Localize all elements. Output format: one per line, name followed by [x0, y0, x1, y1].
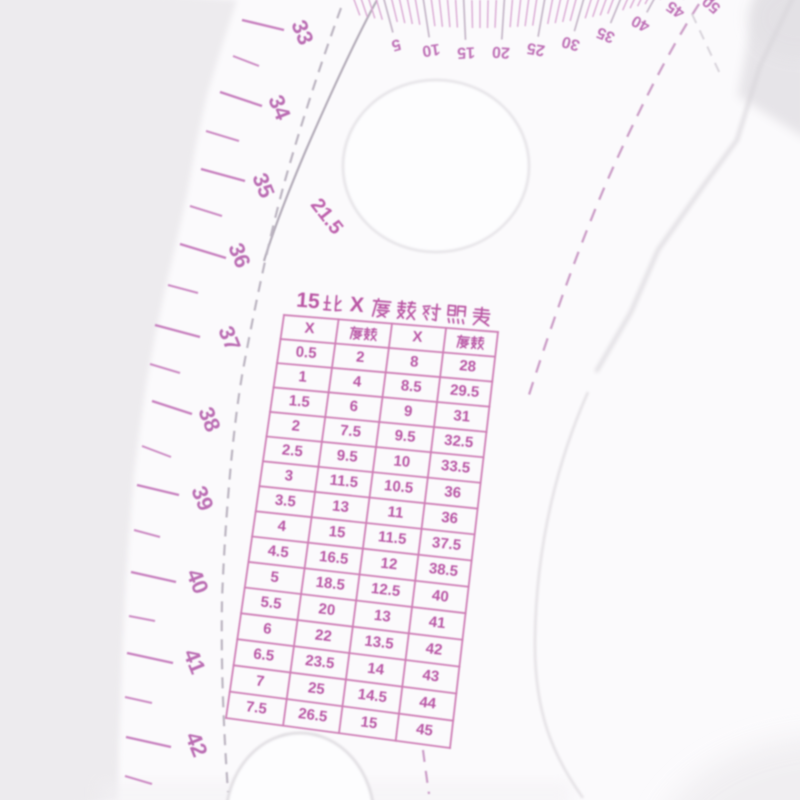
svg-text:5: 5	[389, 35, 402, 54]
svg-text:14: 14	[366, 660, 385, 679]
svg-text:25: 25	[526, 39, 547, 59]
svg-text:15: 15	[328, 523, 346, 542]
svg-text:15: 15	[360, 713, 379, 732]
svg-text:36: 36	[443, 483, 461, 502]
svg-text:21.5: 21.5	[306, 194, 347, 238]
svg-text:8: 8	[409, 353, 419, 371]
svg-text:42: 42	[425, 640, 444, 659]
svg-text:1.5: 1.5	[288, 392, 310, 411]
svg-text:33.5: 33.5	[440, 457, 471, 477]
svg-text:10: 10	[421, 40, 441, 60]
svg-text:4.5: 4.5	[267, 542, 290, 561]
svg-text:12.5: 12.5	[370, 580, 401, 600]
svg-text:15: 15	[457, 43, 476, 61]
svg-text:50: 50	[699, 0, 724, 16]
svg-text:40: 40	[431, 587, 450, 606]
svg-text:36: 36	[440, 509, 458, 528]
svg-text:45: 45	[664, 0, 688, 21]
svg-text:10.5: 10.5	[383, 477, 414, 497]
svg-text:0.5: 0.5	[295, 343, 317, 362]
svg-text:43: 43	[422, 667, 441, 686]
svg-text:13.5: 13.5	[364, 632, 395, 652]
svg-text:7.5: 7.5	[339, 422, 361, 441]
svg-text:20: 20	[491, 43, 510, 61]
svg-text:44: 44	[418, 694, 437, 713]
svg-text:12: 12	[380, 555, 398, 574]
svg-text:7: 7	[255, 673, 265, 691]
svg-text:9: 9	[403, 403, 413, 421]
svg-text:9.5: 9.5	[336, 447, 358, 466]
svg-text:4: 4	[277, 517, 288, 535]
svg-text:5.5: 5.5	[260, 594, 283, 613]
svg-text:6: 6	[349, 398, 359, 416]
svg-text:8.5: 8.5	[400, 377, 422, 396]
svg-text:1: 1	[298, 368, 308, 386]
svg-text:34: 34	[263, 91, 296, 124]
svg-text:4: 4	[352, 373, 362, 391]
svg-text:11.5: 11.5	[377, 528, 407, 548]
svg-text:40: 40	[629, 11, 653, 35]
svg-text:41: 41	[178, 645, 210, 677]
svg-text:41: 41	[428, 613, 447, 632]
svg-text:42: 42	[180, 728, 212, 760]
svg-text:37: 37	[213, 322, 245, 354]
svg-text:39: 39	[186, 482, 218, 514]
svg-text:35: 35	[247, 169, 279, 201]
svg-text:18.5: 18.5	[315, 574, 346, 594]
svg-text:45: 45	[415, 721, 434, 740]
svg-text:5: 5	[270, 568, 280, 586]
svg-text:X: X	[304, 319, 315, 337]
svg-text:33: 33	[286, 16, 318, 48]
svg-text:6.5: 6.5	[252, 645, 275, 664]
svg-text:11: 11	[387, 503, 405, 522]
svg-text:2: 2	[291, 417, 301, 435]
svg-text:35: 35	[594, 23, 617, 46]
svg-text:32.5: 32.5	[443, 432, 474, 452]
svg-text:15: 15	[295, 289, 321, 314]
svg-text:6: 6	[262, 620, 272, 638]
svg-text:X: X	[349, 293, 365, 317]
svg-text:20: 20	[318, 600, 337, 619]
svg-text:36: 36	[223, 239, 255, 271]
svg-text:30: 30	[560, 32, 582, 53]
svg-text:7.5: 7.5	[245, 698, 268, 718]
svg-text:28: 28	[459, 357, 477, 375]
svg-text:29.5: 29.5	[449, 382, 480, 401]
svg-text:31: 31	[453, 407, 471, 425]
svg-text:2.5: 2.5	[281, 441, 303, 460]
svg-text:22: 22	[314, 626, 333, 645]
svg-text:14.5: 14.5	[357, 686, 388, 707]
svg-text:37.5: 37.5	[431, 534, 462, 554]
svg-text:13: 13	[373, 607, 392, 626]
svg-text:38.5: 38.5	[428, 560, 459, 580]
svg-text:X: X	[412, 328, 423, 346]
svg-text:9.5: 9.5	[394, 427, 416, 446]
svg-text:3: 3	[284, 467, 294, 485]
svg-text:10: 10	[393, 452, 411, 471]
svg-text:25: 25	[307, 679, 326, 698]
svg-text:23.5: 23.5	[304, 652, 335, 672]
svg-text:26.5: 26.5	[297, 705, 328, 726]
svg-text:13: 13	[331, 497, 349, 516]
svg-text:11.5: 11.5	[329, 472, 359, 492]
svg-text:40: 40	[181, 565, 213, 597]
svg-text:38: 38	[193, 403, 225, 435]
svg-text:2: 2	[355, 349, 365, 367]
svg-text:3.5: 3.5	[274, 492, 296, 511]
svg-text:16.5: 16.5	[318, 548, 349, 568]
